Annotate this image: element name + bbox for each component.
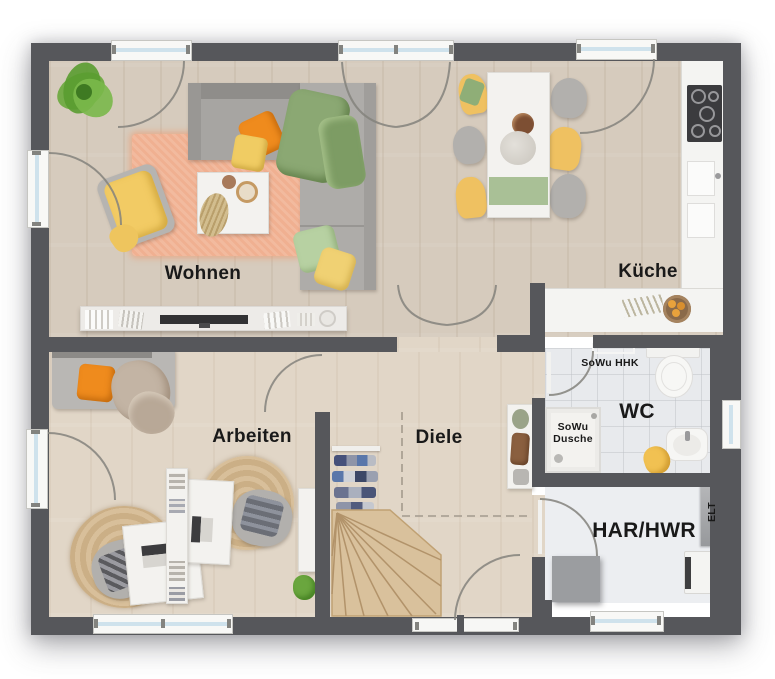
wall-kitchen-stub — [530, 283, 545, 335]
floorplan: Wohnen Küche Arbeiten Diele WC HAR/HWR S… — [0, 0, 775, 679]
books-right — [263, 311, 291, 330]
window-tick — [394, 45, 398, 54]
books-left-2 — [118, 309, 144, 329]
toilet-bowl — [655, 355, 693, 398]
front-door — [412, 618, 519, 632]
window-tick — [31, 430, 40, 434]
wardrobe-plant — [512, 409, 529, 429]
faucet — [715, 173, 721, 179]
window-glass — [729, 405, 733, 444]
window-tick — [339, 45, 343, 54]
sofa-armrest — [188, 83, 201, 160]
wall-living-lower — [49, 337, 397, 352]
door-hinge-mark — [415, 622, 419, 630]
window-tick — [31, 503, 40, 507]
washer-panel — [685, 557, 691, 589]
window-tick — [32, 151, 41, 155]
window-tick — [651, 44, 655, 53]
rack-items-row — [336, 502, 374, 511]
window-glass — [595, 619, 659, 623]
rack-items-row — [334, 487, 376, 498]
shelf-books — [169, 473, 185, 489]
wall-kitchen-wc — [593, 335, 723, 348]
plant-center — [76, 84, 92, 100]
window-glass — [581, 47, 652, 51]
dining-table — [487, 72, 550, 218]
shelf-books — [169, 561, 185, 581]
flower-sprig — [622, 294, 664, 317]
wall-post-har — [538, 600, 552, 617]
wall-hall-shower — [532, 398, 545, 475]
shelf-books — [169, 499, 185, 513]
burner — [699, 106, 715, 122]
dried-grass — [196, 191, 233, 240]
annotation-sowu-dusche: SoWu Dusche — [547, 421, 599, 445]
desk-shelf — [166, 468, 188, 604]
fruit — [668, 300, 676, 308]
decor-items — [297, 313, 315, 326]
window-tick — [657, 616, 661, 625]
potted-plant — [52, 60, 116, 130]
table-runner — [489, 177, 548, 205]
pillow-yellow — [230, 133, 268, 172]
wall-exterior-right-thick — [710, 335, 741, 635]
sofa-edge — [364, 83, 376, 290]
wall-hall-upper — [497, 335, 545, 352]
window-tick — [186, 45, 190, 54]
rack-items-row — [334, 455, 376, 466]
burner — [691, 89, 706, 104]
laptop-base-2 — [200, 518, 213, 543]
room-label-har-hwr: HAR/HWR — [574, 519, 714, 543]
rack-items-row — [332, 471, 378, 482]
desk-2 — [184, 479, 234, 565]
room-label-kueche: Küche — [588, 261, 708, 283]
hall-wardrobe — [507, 404, 533, 489]
burner — [691, 124, 705, 138]
pillow-orange-office — [76, 363, 116, 403]
shower-drain — [554, 454, 563, 463]
shelf-books — [169, 587, 185, 601]
window-tick — [577, 44, 581, 53]
basin-faucet — [685, 431, 690, 441]
utility-cube — [552, 556, 600, 602]
window-glass — [116, 48, 187, 52]
washbasin — [666, 428, 708, 461]
fruit — [672, 309, 680, 317]
window-tick — [227, 619, 231, 628]
wall-office-hall — [315, 412, 330, 617]
books-left — [85, 310, 113, 329]
room-label-arbeiten: Arbeiten — [192, 426, 312, 448]
sofa-backrest — [188, 83, 302, 99]
window-tick — [161, 619, 165, 628]
room-label-wohnen: Wohnen — [143, 263, 263, 285]
decor-vase — [222, 175, 236, 189]
kitchen-counter-bottom — [545, 288, 723, 332]
door-hinge-mark — [513, 622, 517, 630]
room-label-wc: WC — [597, 400, 677, 424]
fruit-bowl — [663, 295, 691, 323]
sink-basin-1 — [687, 161, 715, 196]
rack-rail — [332, 446, 380, 451]
room-label-diele: Diele — [379, 427, 499, 449]
floor-wc-doorway-patch — [532, 352, 545, 398]
annotation-elt: ELT — [706, 492, 718, 532]
coffee-table — [197, 172, 269, 234]
door-handle-mark — [457, 615, 464, 635]
toilet-seat — [661, 362, 687, 391]
sink-basin-2 — [687, 203, 715, 238]
decor-plate — [319, 310, 336, 327]
window-tick — [449, 45, 453, 54]
floor-har-doorway-patch — [532, 495, 545, 557]
window-tick — [591, 616, 595, 625]
wardrobe-item — [513, 469, 529, 485]
cooktop — [687, 85, 722, 142]
floor-doorway-patch — [397, 337, 497, 352]
burner — [709, 125, 721, 137]
annotation-sowu-hhk: SoWu HHK — [568, 357, 652, 369]
window-glass — [35, 155, 39, 223]
wall-wc-har — [532, 473, 710, 487]
small-plant — [293, 575, 316, 600]
wardrobe-bag — [510, 432, 530, 465]
wall-exterior-left — [31, 43, 49, 635]
window-glass — [34, 434, 38, 504]
office-cabinet — [298, 488, 316, 572]
window-tick — [112, 45, 116, 54]
window-tick — [94, 619, 98, 628]
burner — [708, 91, 719, 102]
flower-decor — [500, 131, 536, 165]
tv-stand — [199, 323, 210, 328]
coat-rack — [332, 446, 380, 514]
window-tick — [32, 222, 41, 226]
decor-bowl — [236, 181, 258, 203]
tv-sideboard — [80, 306, 347, 331]
